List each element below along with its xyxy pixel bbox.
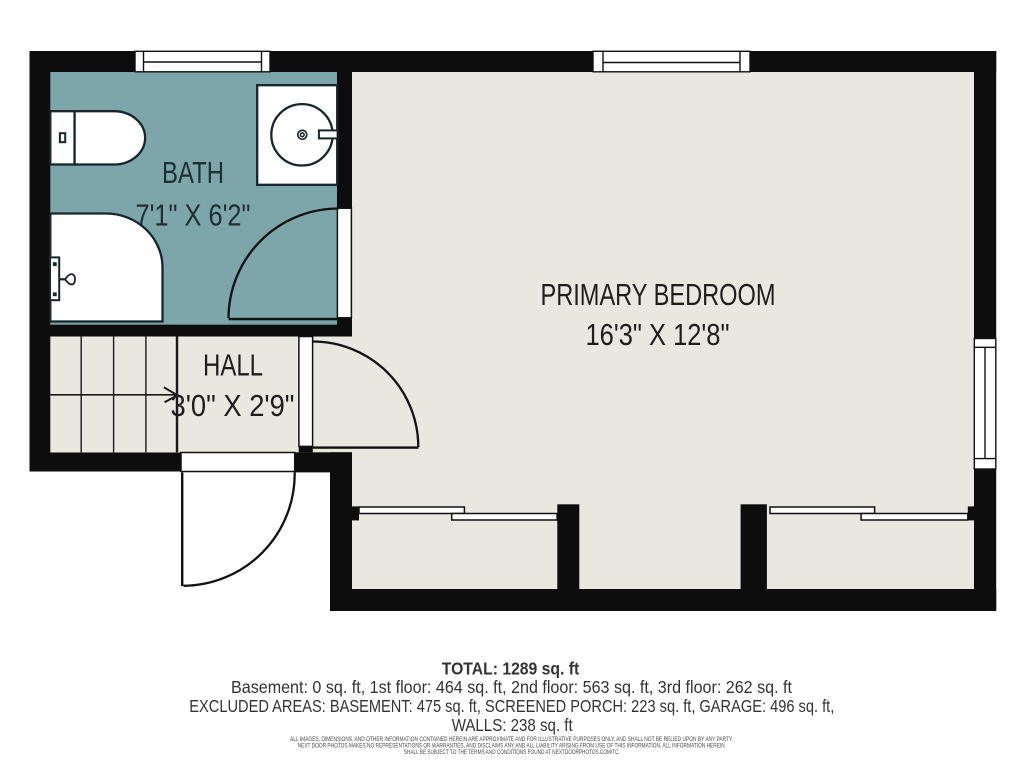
svg-text:16'3" X 12'8": 16'3" X 12'8" bbox=[586, 317, 730, 352]
svg-text:3'0" X 2'9": 3'0" X 2'9" bbox=[171, 388, 295, 423]
svg-text:PRIMARY BEDROOM: PRIMARY BEDROOM bbox=[541, 277, 776, 312]
svg-text:NEXT DOOR PHOTOS MAKES NO REPR: NEXT DOOR PHOTOS MAKES NO REPRESENTATION… bbox=[298, 743, 725, 749]
svg-text:BATH: BATH bbox=[162, 155, 224, 190]
svg-text:ALL IMAGES, DIMENSIONS, AND OT: ALL IMAGES, DIMENSIONS, AND OTHER INFORM… bbox=[290, 737, 733, 743]
svg-text:7'1" X 6'2": 7'1" X 6'2" bbox=[136, 198, 251, 233]
svg-text:Basement: 0 sq. ft, 1st floor:: Basement: 0 sq. ft, 1st floor: 464 sq. f… bbox=[231, 677, 792, 697]
svg-text:SHALL BE SUBJECT TO THE TERMS: SHALL BE SUBJECT TO THE TERMS AND CONDIT… bbox=[404, 750, 620, 756]
svg-text:WALLS: 238 sq. ft: WALLS: 238 sq. ft bbox=[452, 715, 573, 735]
svg-text:TOTAL: 1289 sq. ft: TOTAL: 1289 sq. ft bbox=[442, 659, 580, 679]
svg-text:HALL: HALL bbox=[203, 348, 263, 383]
svg-text:EXCLUDED AREAS: BASEMENT: 475: EXCLUDED AREAS: BASEMENT: 475 sq. ft, SC… bbox=[189, 696, 834, 716]
